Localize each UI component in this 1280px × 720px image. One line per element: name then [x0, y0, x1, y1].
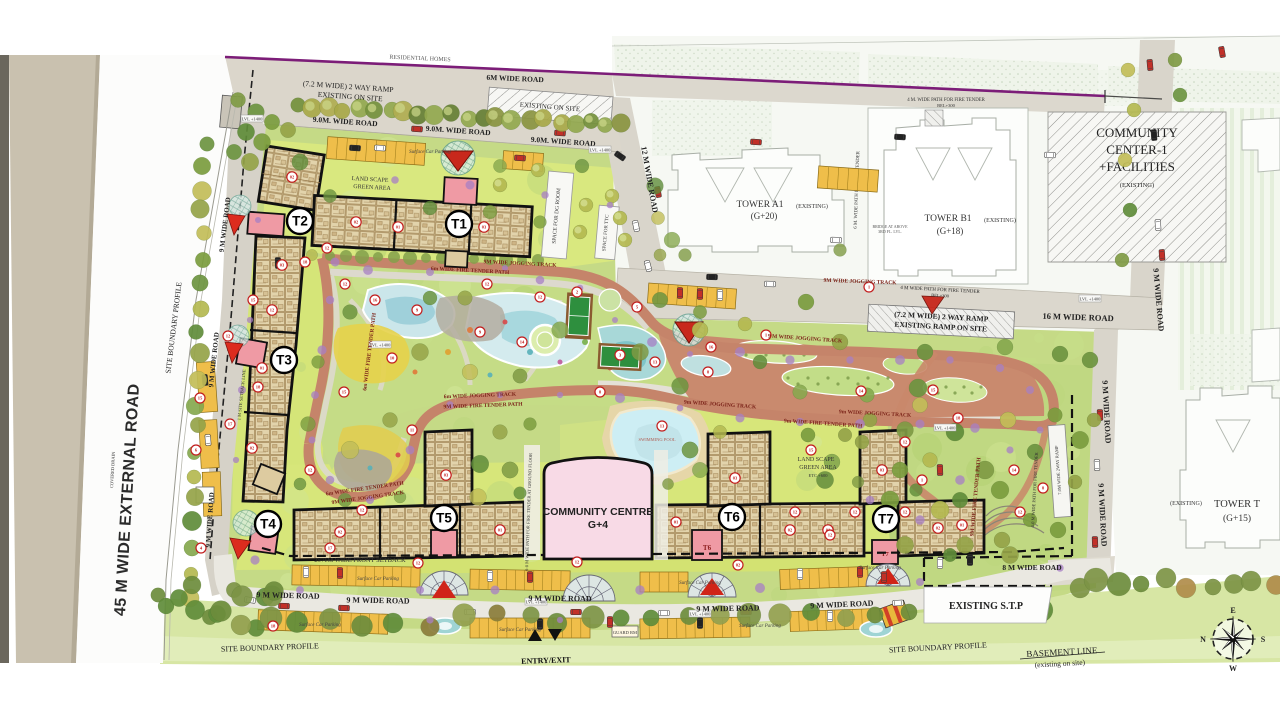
- svg-text:LVL +1400: LVL +1400: [935, 426, 957, 431]
- svg-text:Surface Car Parking: Surface Car Parking: [859, 566, 901, 571]
- svg-text:12: 12: [270, 308, 274, 313]
- svg-text:12: 12: [1018, 510, 1023, 515]
- svg-text:COMMUNITY: COMMUNITY: [1096, 125, 1178, 140]
- svg-text:13: 13: [660, 424, 665, 429]
- svg-text:GREEN AREA: GREEN AREA: [799, 465, 837, 471]
- svg-text:15: 15: [931, 388, 936, 393]
- svg-text:02: 02: [338, 530, 342, 535]
- svg-text:LVL +1400: LVL +1400: [242, 117, 264, 122]
- svg-text:12: 12: [325, 246, 330, 251]
- svg-text:12: 12: [828, 533, 833, 538]
- svg-text:14: 14: [859, 389, 864, 394]
- svg-text:(G+15): (G+15): [1223, 513, 1251, 524]
- svg-text:16: 16: [709, 345, 714, 350]
- svg-text:E: E: [1230, 606, 1235, 615]
- svg-text:T6: T6: [703, 544, 712, 552]
- svg-text:9 M WIDE ROAD: 9 M WIDE ROAD: [346, 595, 410, 605]
- svg-text:(EXISTING): (EXISTING): [984, 217, 1016, 224]
- svg-text:12: 12: [416, 561, 421, 566]
- svg-text:14: 14: [520, 340, 525, 345]
- svg-text:LVL +1400: LVL +1400: [590, 148, 612, 153]
- svg-text:12: 12: [485, 282, 490, 287]
- svg-text:12: 12: [903, 440, 908, 445]
- svg-text:9 M WIDE ROAD: 9 M WIDE ROAD: [528, 594, 591, 604]
- svg-text:SWIMMING POOL: SWIMMING POOL: [638, 437, 675, 442]
- svg-text:9 M WIDE ROAD: 9 M WIDE ROAD: [256, 590, 320, 601]
- svg-text:15: 15: [342, 390, 347, 395]
- svg-text:ETC +600: ETC +600: [809, 473, 829, 478]
- svg-text:LAND SCAPE: LAND SCAPE: [798, 457, 835, 463]
- svg-text:BEL+300: BEL+300: [937, 103, 956, 108]
- svg-text:01: 01: [260, 366, 264, 371]
- svg-text:COMMUNITY CENTRE: COMMUNITY CENTRE: [543, 506, 654, 518]
- svg-text:11: 11: [410, 428, 415, 433]
- svg-text:12: 12: [575, 560, 580, 565]
- svg-text:12: 12: [360, 508, 365, 513]
- svg-text:(EXISTING): (EXISTING): [1170, 500, 1202, 507]
- svg-text:ENTRY/EXIT: ENTRY/EXIT: [521, 655, 571, 666]
- svg-text:02: 02: [936, 526, 940, 531]
- svg-text:(G+20): (G+20): [751, 211, 778, 221]
- svg-text:TOWER A1: TOWER A1: [736, 200, 783, 210]
- svg-text:BEL+300: BEL+300: [931, 293, 950, 299]
- svg-text:T1: T1: [451, 217, 467, 232]
- svg-text:9 M WIDE ROAD: 9 M WIDE ROAD: [696, 603, 760, 613]
- svg-text:18: 18: [303, 260, 308, 265]
- svg-text:(EXISTING): (EXISTING): [1120, 182, 1154, 189]
- svg-text:LVL +1400: LVL +1400: [1080, 297, 1102, 302]
- svg-text:02: 02: [354, 220, 358, 225]
- svg-text:15: 15: [809, 448, 814, 453]
- svg-text:CENTER-1: CENTER-1: [1106, 142, 1167, 157]
- svg-text:(G+18): (G+18): [937, 226, 964, 236]
- svg-text:T3: T3: [276, 353, 292, 368]
- svg-text:10: 10: [390, 356, 395, 361]
- svg-text:13: 13: [653, 360, 658, 365]
- svg-text:Surface Car Parking: Surface Car Parking: [739, 624, 781, 629]
- svg-text:15: 15: [198, 396, 203, 401]
- svg-text:17: 17: [328, 546, 333, 551]
- svg-text:EXISTING S.T.P: EXISTING S.T.P: [949, 601, 1023, 612]
- svg-text:18: 18: [271, 624, 276, 629]
- svg-text:N: N: [1200, 635, 1206, 644]
- svg-text:12: 12: [343, 282, 348, 287]
- svg-text:12: 12: [853, 510, 858, 515]
- svg-text:01: 01: [498, 528, 502, 533]
- svg-text:02: 02: [250, 446, 254, 451]
- svg-text:12: 12: [226, 334, 231, 339]
- svg-text:T2: T2: [292, 214, 308, 229]
- svg-text:(EXISTING): (EXISTING): [796, 203, 828, 210]
- svg-text:T5: T5: [436, 511, 452, 526]
- svg-text:T7: T7: [878, 512, 894, 527]
- svg-text:T4: T4: [260, 517, 276, 532]
- svg-text:Surface Car Parking: Surface Car Parking: [409, 150, 451, 155]
- svg-text:01: 01: [674, 520, 679, 525]
- svg-text:02: 02: [736, 563, 741, 568]
- svg-text:Surface Car Parking: Surface Car Parking: [357, 577, 399, 582]
- svg-text:Surface Car Parking: Surface Car Parking: [679, 581, 721, 586]
- svg-text:16: 16: [373, 298, 378, 303]
- svg-text:01: 01: [396, 225, 400, 230]
- svg-text:8 M WIDE ROAD: 8 M WIDE ROAD: [1002, 563, 1062, 572]
- svg-text:15: 15: [251, 298, 256, 303]
- svg-text:12: 12: [538, 295, 543, 300]
- svg-text:+FACILITIES: +FACILITIES: [1099, 159, 1175, 174]
- svg-text:TOWER T: TOWER T: [1214, 499, 1261, 510]
- svg-text:01: 01: [960, 523, 964, 528]
- svg-text:G+4: G+4: [588, 519, 608, 531]
- svg-text:14: 14: [1012, 468, 1017, 473]
- svg-text:S: S: [1261, 635, 1266, 644]
- svg-text:12: 12: [308, 468, 313, 473]
- svg-text:12: 12: [903, 510, 908, 515]
- svg-text:17: 17: [228, 422, 233, 427]
- svg-text:18: 18: [956, 416, 961, 421]
- svg-text:3RD FL. LVL.: 3RD FL. LVL.: [878, 229, 902, 234]
- svg-text:25 /1M WIDE FRONT SETBACK: 25 /1M WIDE FRONT SETBACK: [314, 557, 406, 564]
- svg-text:T6: T6: [724, 510, 740, 525]
- svg-text:02: 02: [290, 175, 294, 180]
- svg-text:18: 18: [256, 385, 261, 390]
- svg-text:GUARD RM: GUARD RM: [613, 630, 637, 635]
- svg-text:12: 12: [793, 510, 798, 515]
- svg-text:02: 02: [788, 528, 792, 533]
- svg-text:W: W: [1229, 664, 1237, 673]
- svg-text:Surface Car Parking: Surface Car Parking: [299, 623, 341, 628]
- svg-text:TOWER B1: TOWER B1: [924, 214, 971, 224]
